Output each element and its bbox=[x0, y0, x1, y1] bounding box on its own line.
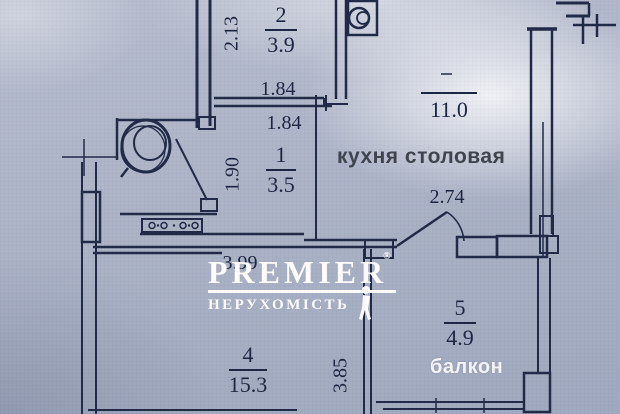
room2-number: 2 bbox=[259, 4, 303, 26]
room5-number: 5 bbox=[435, 297, 485, 319]
dim-kitchen-door-width: 2.74 bbox=[421, 186, 473, 209]
watermark-brand: PREMIER® bbox=[208, 256, 418, 288]
dim-room1-height: 1.90 bbox=[222, 145, 245, 205]
watermark-subtitle: НЕРУХОМІСТЬ bbox=[208, 297, 349, 314]
registered-trademark-icon: ® bbox=[383, 252, 390, 262]
radiator-icon bbox=[142, 219, 202, 232]
floorplan-photo: 2 3.9 1 3.5 4 15.3 5 4.9 11.0 2.13 1.84 … bbox=[0, 0, 620, 414]
watermark: PREMIER® НЕРУХОМІСТЬ bbox=[208, 256, 418, 321]
room4-area: 15.3 bbox=[222, 374, 274, 396]
dim-room2-width: 1.84 bbox=[252, 78, 304, 101]
room2-area: 3.9 bbox=[259, 34, 303, 56]
dim-room2-height: 2.13 bbox=[221, 4, 244, 64]
toilet-icon bbox=[348, 1, 377, 35]
dim-room4-height: 3.85 bbox=[330, 346, 353, 406]
bathroom-door-swing bbox=[176, 117, 217, 211]
room5-label: 5 4.9 bbox=[435, 297, 485, 349]
room4-divider bbox=[229, 369, 267, 371]
kitchen-area-value: 11.0 bbox=[421, 92, 477, 123]
kitchen-label: кухня столовая bbox=[337, 145, 505, 169]
dim-room1-width: 1.84 bbox=[258, 112, 310, 135]
room2-divider bbox=[265, 29, 297, 31]
room4-label: 4 15.3 bbox=[222, 344, 274, 396]
balcony-label: балкон bbox=[430, 356, 503, 379]
floorplan-drawing bbox=[0, 0, 620, 414]
sink-icon bbox=[121, 120, 170, 177]
watermark-brand-text: PREMIER bbox=[208, 254, 387, 290]
room4-number: 4 bbox=[222, 344, 274, 366]
room1-divider bbox=[266, 169, 296, 171]
room1-area: 3.5 bbox=[257, 174, 305, 196]
room1-label: 1 3.5 bbox=[257, 144, 305, 196]
room2-label: 2 3.9 bbox=[259, 4, 303, 56]
room5-divider bbox=[444, 322, 476, 324]
room5-area: 4.9 bbox=[435, 327, 485, 349]
room1-number: 1 bbox=[257, 144, 305, 166]
kitchen-door-swing bbox=[397, 212, 464, 246]
